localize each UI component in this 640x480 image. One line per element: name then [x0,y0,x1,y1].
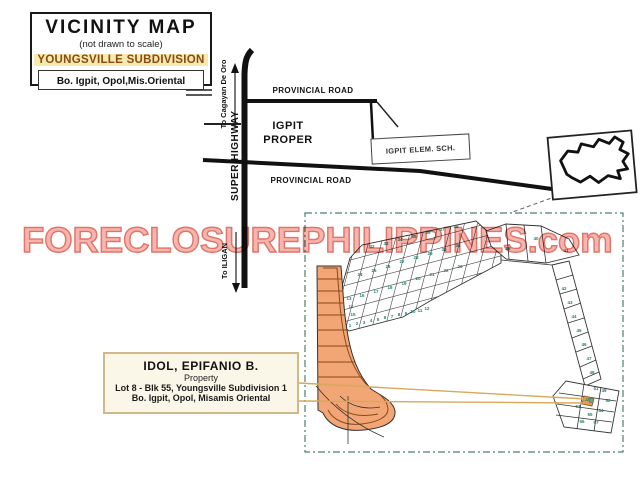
property-lot-line: Lot 8 - Blk 55, Youngsville Subdivision … [105,383,297,393]
lot-number: 23 [457,264,463,269]
subdivision-name: YOUNGSVILLE SUBDIVISION [34,54,207,66]
map-subtitle: (not drawn to scale) [32,39,210,50]
lot-number: 15 [350,312,356,317]
lot-number: 12 [424,306,430,311]
lot-number: 51 [593,386,599,391]
map-title: VICINITY MAP [32,18,210,38]
lot-number: 22 [443,268,449,273]
lot-number: 30 [441,247,447,252]
lot-number: 39 [505,246,511,251]
lot-number: 25 [371,268,377,273]
lot-number: 36 [425,230,431,235]
lot-number: 11 [418,308,423,313]
lot-number: 46 [581,342,587,347]
lot-number: 18 [387,285,393,290]
lot-number: 27 [399,259,405,264]
property-owner: IDOL, EPIFANIO B. [105,359,297,373]
to-cagayan-label: To Cagayan De Oro [219,59,231,129]
lot-number: 37 [439,227,445,232]
lot-number: 43 [567,300,573,305]
lot-number: 48 [589,370,595,375]
provincial-road-bottom-label: PROVINCIAL ROAD [266,176,356,185]
provincial-road-bottom-line [203,160,552,189]
lot-number: 49 [601,388,607,393]
lot-number: 10 [410,309,416,314]
property-address: Bo. Igpit, Opol, Misamis Oriental [105,393,297,403]
lot-number: 53 [575,404,581,409]
lot-number: 45 [576,328,582,333]
lot-number: 31 [455,243,461,248]
site-inset-box [548,130,637,199]
lot-number: 28 [413,255,419,260]
lot-number: 26 [385,264,391,269]
lot-block-bottomright [553,381,619,433]
lot-number: 50 [605,398,611,403]
title-box: VICINITY MAP (not drawn to scale) YOUNGS… [30,12,212,86]
lot-number: 13 [346,296,352,301]
lot-number: 14 [348,304,354,309]
location-line: Bo. Igpit, Opol,Mis.Oriental [57,76,185,87]
super-highway-label: SUPER HIGHWAY [230,121,244,201]
inset-connector-line [510,196,557,213]
lot-number: 34 [397,237,403,242]
lot-number: 32 [369,244,375,249]
lot-number: 40 [533,236,539,241]
lot-number: 33 [383,241,389,246]
property-kind: Property [105,373,297,383]
lot-number: 44 [571,314,577,319]
lot-number: 21 [429,272,435,277]
lot-number: 19 [401,281,407,286]
lot-number: 55 [587,412,593,417]
lot-number: 17 [373,289,379,294]
lot-number: 56 [579,419,585,424]
lot-number: 57 [593,420,599,425]
super-highway-road [245,50,253,288]
lot-number: 29 [427,251,433,256]
south-arrow-head [232,283,240,293]
vicinity-map-page: 1234567891011121314151617181920212223242… [0,0,640,480]
location-box: Bo. Igpit, Opol,Mis.Oriental [38,70,204,90]
north-arrow-head [231,63,239,73]
lot-number: 42 [561,286,567,291]
lot-number: 20 [415,276,421,281]
subdivision-plat: 1234567891011121314151617181920212223242… [290,218,619,444]
lot-number: 41 [563,248,569,253]
provincial-road-top-label: PROVINCIAL ROAD [268,86,358,95]
target-lot-marker [589,398,594,403]
to-iligan-label: To ILIGAN [220,236,232,286]
school-connector-line [377,102,398,127]
lot-number: 24 [357,272,363,277]
lot-block-ladder [552,261,601,386]
lot-number: 47 [586,356,592,361]
lot-number: 35 [411,234,417,239]
school-box: IGPIT ELEM. SCH. [370,133,470,164]
property-label-box: IDOL, EPIFANIO B. Property Lot 8 - Blk 5… [103,352,299,414]
igpit-proper-label: IGPIT PROPER [253,120,323,148]
lot-number: 54 [598,408,604,413]
lot-number: 16 [359,293,365,298]
lot-number: 38 [453,224,459,229]
